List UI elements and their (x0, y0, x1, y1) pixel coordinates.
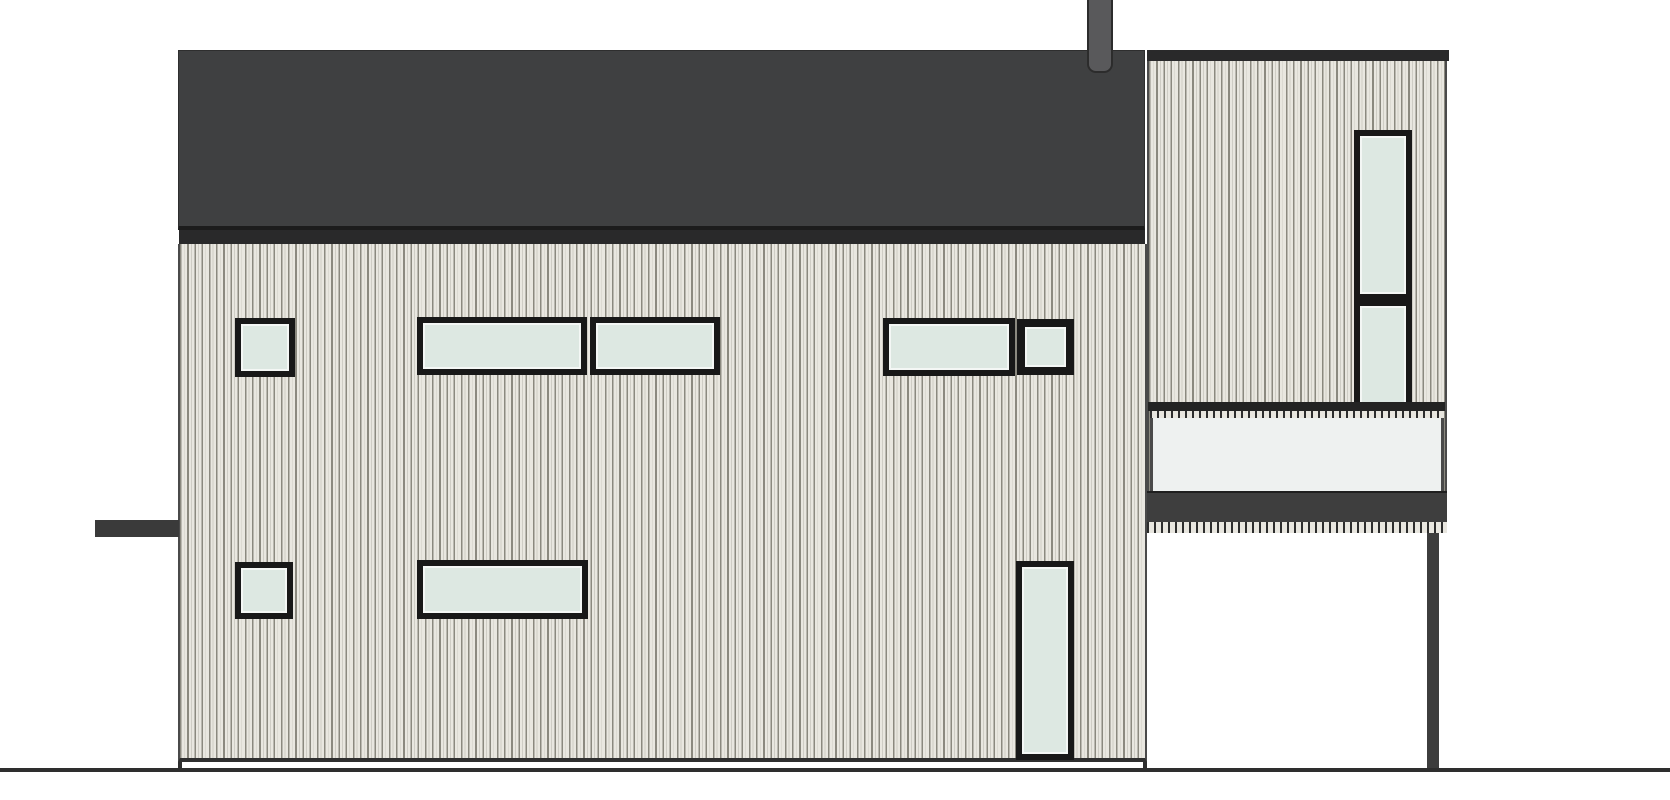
balcony-panel (1150, 412, 1444, 491)
window-lower-left-small (235, 562, 293, 619)
window-upper-mid-left (417, 317, 587, 375)
chimney (1087, 0, 1113, 73)
window-lower-mid-wide (417, 560, 588, 619)
left-canopy-bar (95, 520, 179, 537)
roof-fascia (179, 230, 1145, 244)
balcony-rail (1148, 402, 1445, 411)
tower-parapet-cap (1147, 50, 1449, 61)
window-upper-right-wide (883, 318, 1015, 376)
main-roof (178, 50, 1145, 230)
window-upper-right-small (1017, 319, 1074, 375)
balcony-post (1427, 533, 1439, 770)
balcony-soffit-ticks (1147, 522, 1447, 533)
ground-line (0, 768, 1670, 772)
tower-window-upper-sash (1354, 130, 1412, 300)
window-upper-left-small (235, 318, 295, 377)
balcony-fascia (1147, 491, 1447, 522)
balcony-rail-ticks (1150, 411, 1444, 418)
elevation-drawing-canvas (0, 0, 1670, 800)
window-tall-door (1016, 561, 1074, 760)
window-upper-mid-right (590, 317, 720, 375)
